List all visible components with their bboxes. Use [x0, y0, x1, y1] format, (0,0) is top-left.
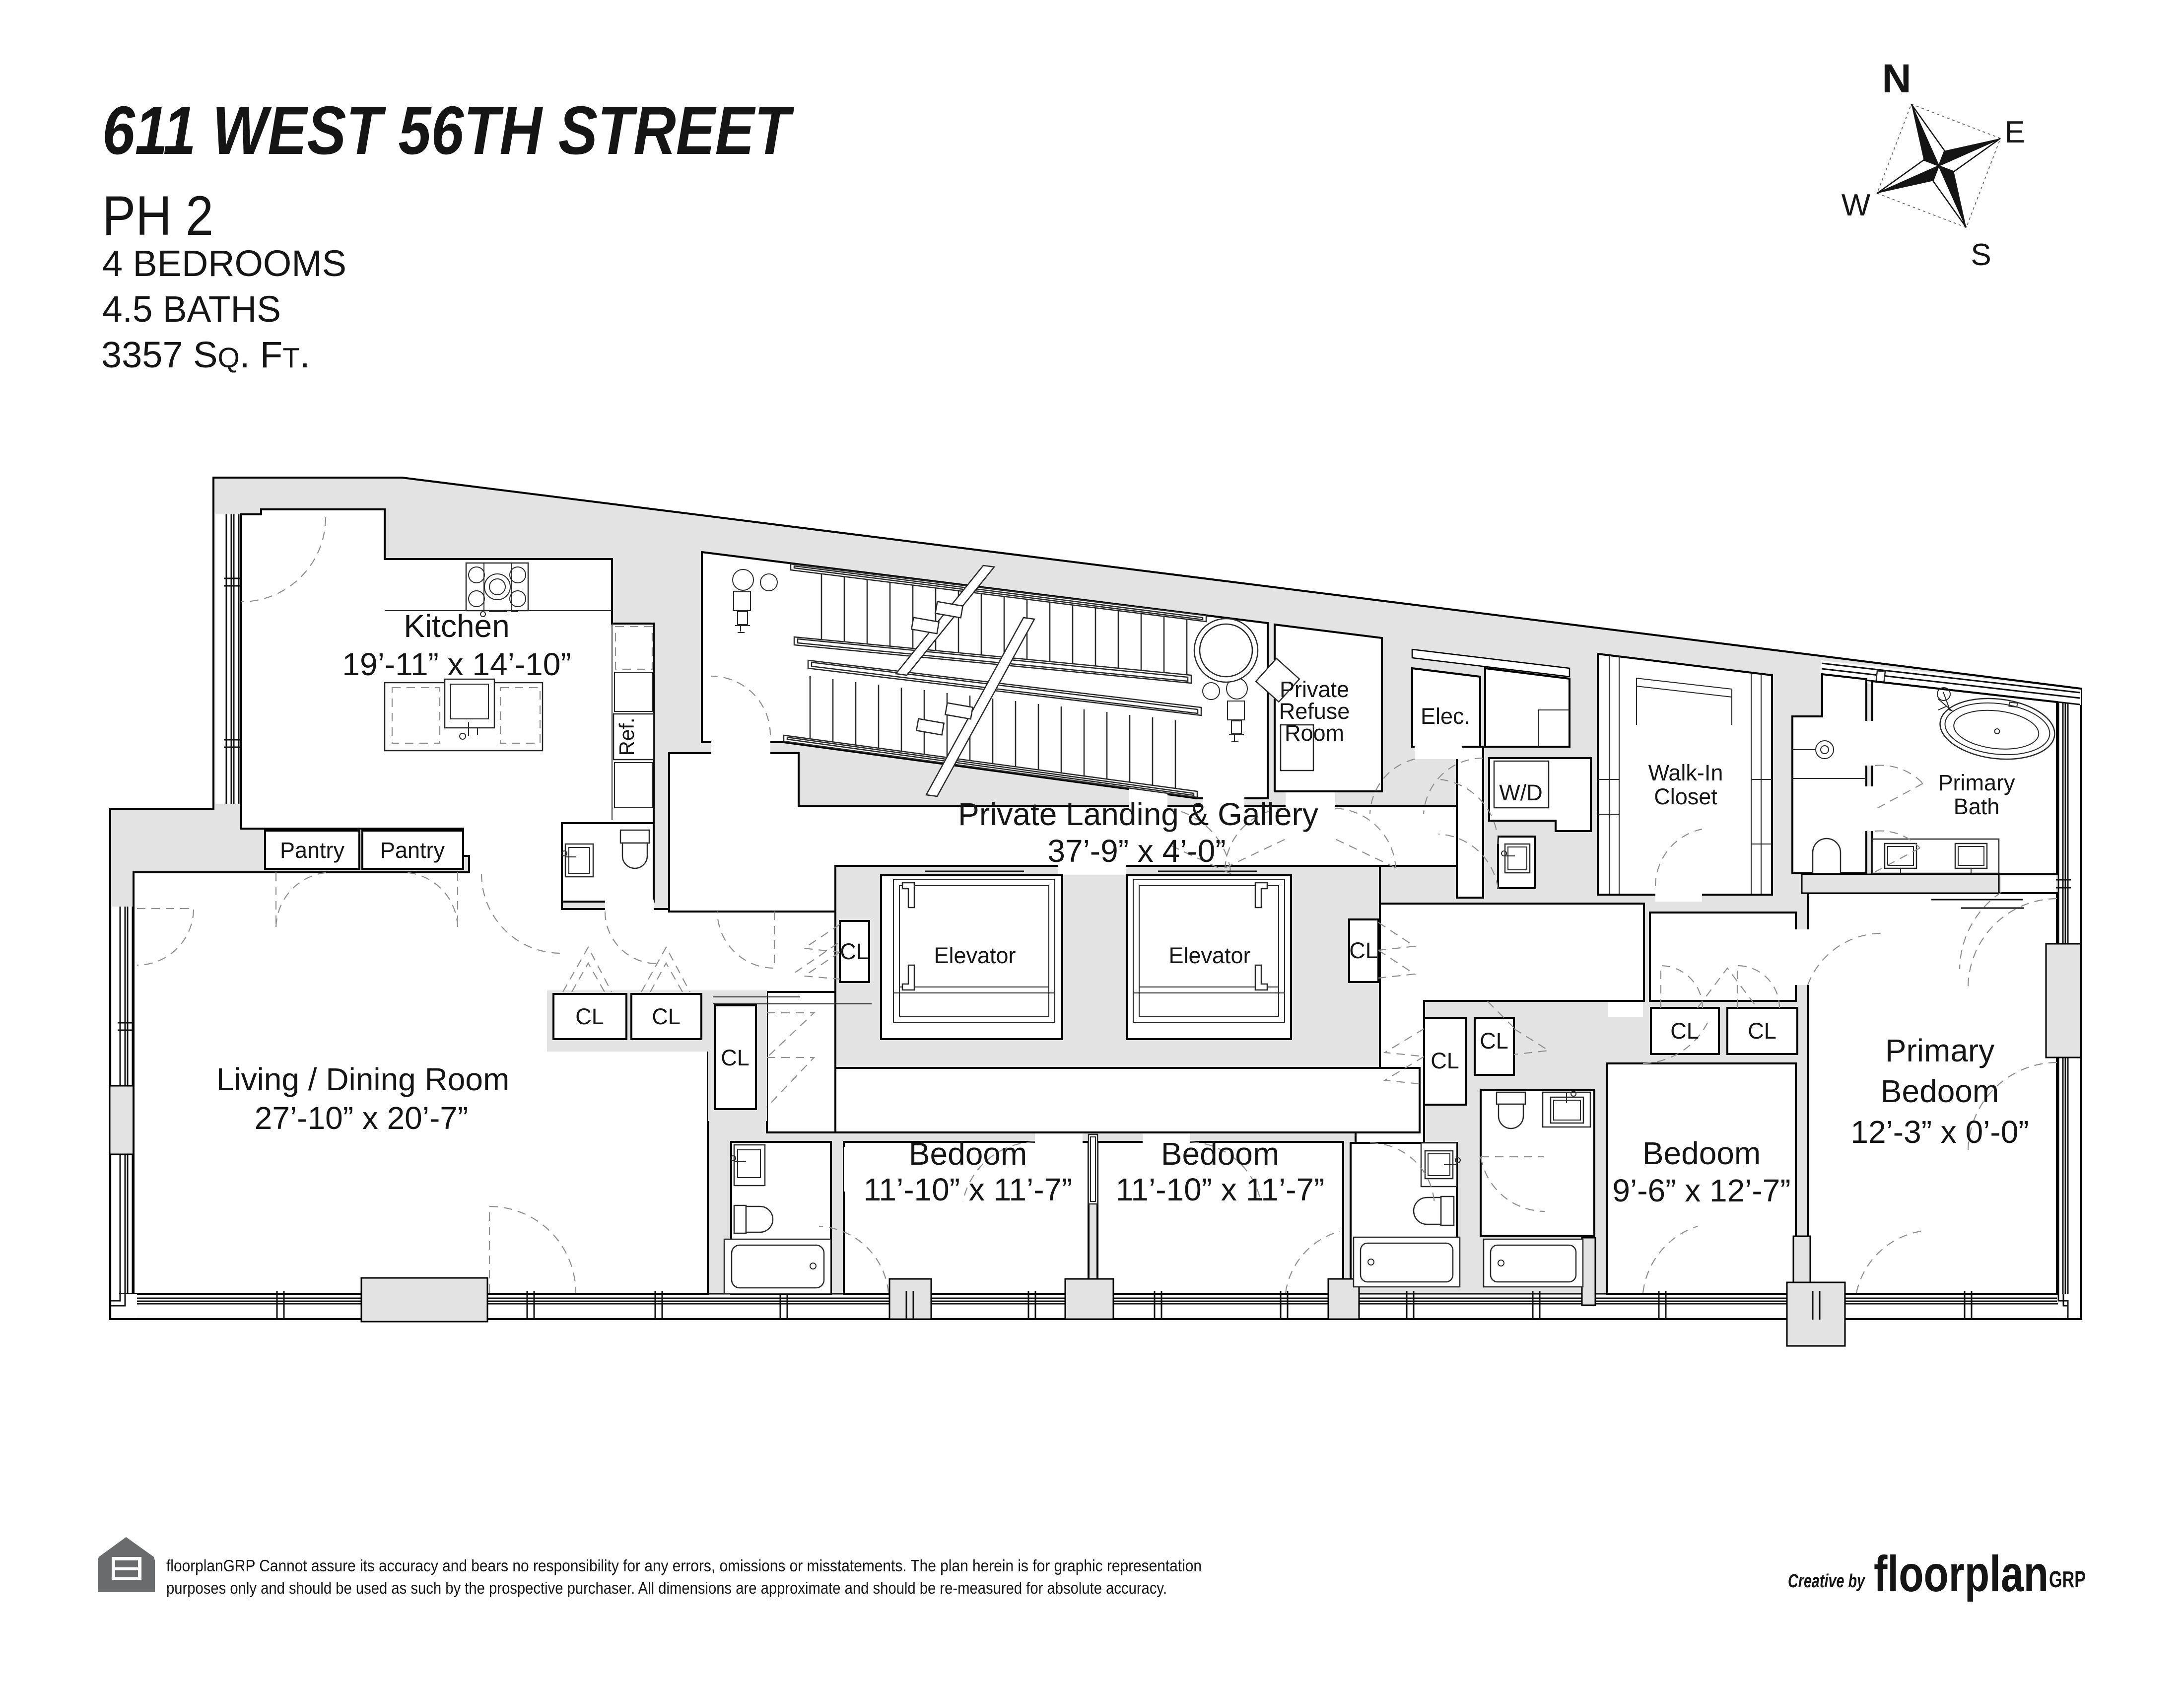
svg-text:CL: CL	[1431, 1048, 1459, 1073]
svg-text:Room: Room	[1285, 720, 1344, 746]
svg-text:Elec.: Elec.	[1421, 703, 1470, 729]
svg-text:Bath: Bath	[1954, 794, 2000, 819]
svg-text:19’-11” x 14’-10”: 19’-11” x 14’-10”	[342, 646, 571, 682]
svg-text:floorplanGRP Cannot assure its: floorplanGRP Cannot assure its accuracy …	[166, 1556, 1202, 1575]
svg-text:W/D: W/D	[1499, 780, 1542, 805]
svg-text:37’-9” x 4’-0”: 37’-9” x 4’-0”	[1047, 833, 1226, 869]
svg-text:CL: CL	[840, 939, 869, 964]
svg-text:PH 2: PH 2	[102, 185, 213, 247]
svg-text:Primary: Primary	[1885, 1033, 1994, 1068]
svg-text:floorplan: floorplan	[1874, 1546, 2048, 1602]
svg-text:GRP: GRP	[2049, 1566, 2086, 1592]
svg-text:S: S	[1971, 238, 1991, 272]
svg-text:12’-3” x 0’-0”: 12’-3” x 0’-0”	[1850, 1114, 2029, 1150]
svg-text:27’-10” x 20’-7”: 27’-10” x 20’-7”	[255, 1100, 468, 1136]
svg-text:611 WEST 56TH STREET: 611 WEST 56TH STREET	[102, 92, 794, 169]
svg-text:4.5 BATHS: 4.5 BATHS	[102, 288, 281, 330]
svg-text:11’-10” x 11’-7”: 11’-10” x 11’-7”	[1116, 1172, 1325, 1207]
svg-text:Closet: Closet	[1654, 784, 1717, 809]
svg-text:Kitchen: Kitchen	[404, 608, 509, 644]
svg-text:11’-10” x 11’-7”: 11’-10” x 11’-7”	[864, 1172, 1073, 1207]
svg-text:Private Landing & Gallery: Private Landing & Gallery	[958, 796, 1318, 832]
svg-text:Pantry: Pantry	[280, 838, 345, 863]
svg-text:CL: CL	[1748, 1018, 1776, 1044]
svg-text:CL: CL	[1480, 1028, 1508, 1054]
svg-text:Creative by: Creative by	[1788, 1571, 1865, 1592]
svg-text:Living / Dining Room: Living / Dining Room	[216, 1061, 510, 1097]
svg-text:CL: CL	[1670, 1018, 1699, 1044]
svg-text:CL: CL	[575, 1004, 604, 1029]
svg-text:CL: CL	[652, 1004, 681, 1029]
svg-text:W: W	[1842, 188, 1871, 222]
svg-text:Elevator: Elevator	[934, 943, 1016, 968]
svg-text:Pantry: Pantry	[380, 838, 445, 863]
svg-text:E: E	[2004, 115, 2025, 149]
svg-text:3357 SQ. FT.: 3357 SQ. FT.	[101, 334, 310, 375]
svg-text:Bedoom: Bedoom	[1881, 1073, 1999, 1109]
svg-text:purposes only and should be us: purposes only and should be used as such…	[166, 1579, 1167, 1597]
svg-text:Elevator: Elevator	[1168, 943, 1250, 968]
svg-text:Ref.: Ref.	[615, 717, 638, 756]
svg-text:Walk-In: Walk-In	[1648, 760, 1723, 785]
svg-text:CL: CL	[1349, 938, 1378, 963]
svg-text:4 BEDROOMS: 4 BEDROOMS	[102, 243, 346, 284]
svg-text:N: N	[1882, 56, 1911, 101]
svg-text:9’-6” x 12’-7”: 9’-6” x 12’-7”	[1612, 1173, 1790, 1208]
svg-text:CL: CL	[721, 1045, 750, 1070]
svg-text:Bedoom: Bedoom	[1642, 1135, 1761, 1171]
svg-text:Bedoom: Bedoom	[1161, 1136, 1279, 1172]
svg-text:Primary: Primary	[1938, 770, 2015, 795]
svg-text:Bedoom: Bedoom	[909, 1136, 1027, 1172]
